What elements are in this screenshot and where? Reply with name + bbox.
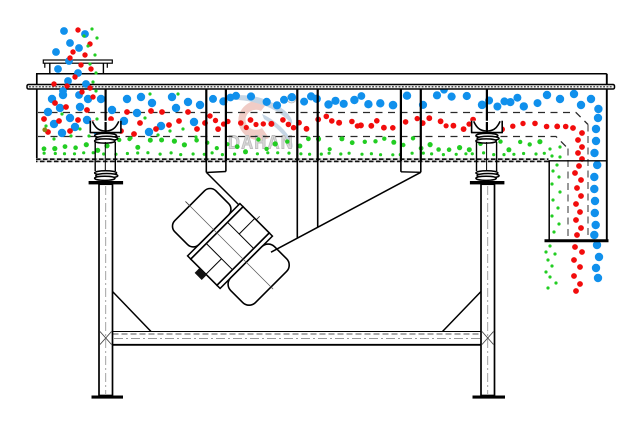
svg-text:DAHAN: DAHAN: [228, 133, 294, 153]
